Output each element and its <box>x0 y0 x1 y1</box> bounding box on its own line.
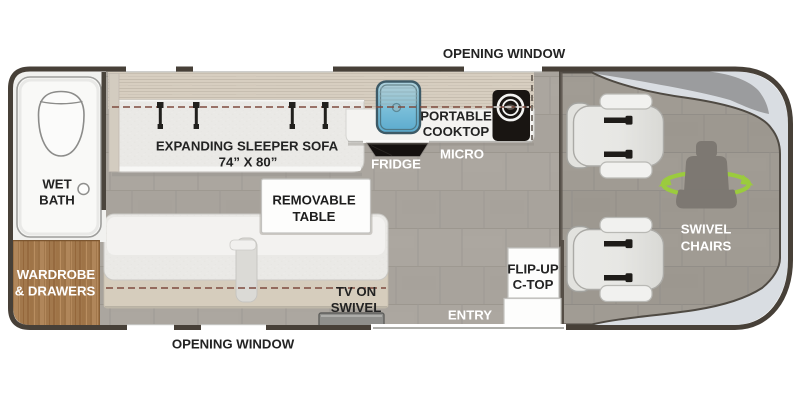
svg-text:REMOVABLE: REMOVABLE <box>272 193 355 208</box>
svg-text:COOKTOP: COOKTOP <box>423 124 490 139</box>
svg-text:WARDROBE: WARDROBE <box>17 267 96 282</box>
svg-text:FRIDGE: FRIDGE <box>371 157 421 172</box>
svg-text:TABLE: TABLE <box>293 209 336 224</box>
svg-text:PORTABLE: PORTABLE <box>420 109 492 124</box>
svg-text:74” X 80”: 74” X 80” <box>219 155 278 170</box>
svg-text:FLIP-UP: FLIP-UP <box>507 262 558 277</box>
svg-text:CHAIRS: CHAIRS <box>681 239 732 254</box>
svg-text:EXPANDING SLEEPER SOFA: EXPANDING SLEEPER SOFA <box>156 139 339 154</box>
svg-text:BATH: BATH <box>39 193 75 208</box>
svg-text:WET: WET <box>42 177 71 192</box>
svg-text:OPENING WINDOW: OPENING WINDOW <box>172 337 295 352</box>
svg-text:ENTRY: ENTRY <box>448 308 492 323</box>
svg-text:C-TOP: C-TOP <box>513 277 554 292</box>
svg-text:SWIVEL: SWIVEL <box>681 222 732 237</box>
svg-text:OPENING WINDOW: OPENING WINDOW <box>443 46 566 61</box>
svg-text:& DRAWERS: & DRAWERS <box>15 284 96 299</box>
svg-text:SWIVEL: SWIVEL <box>331 300 382 315</box>
svg-text:TV ON: TV ON <box>336 284 376 299</box>
svg-text:MICRO: MICRO <box>440 147 484 162</box>
